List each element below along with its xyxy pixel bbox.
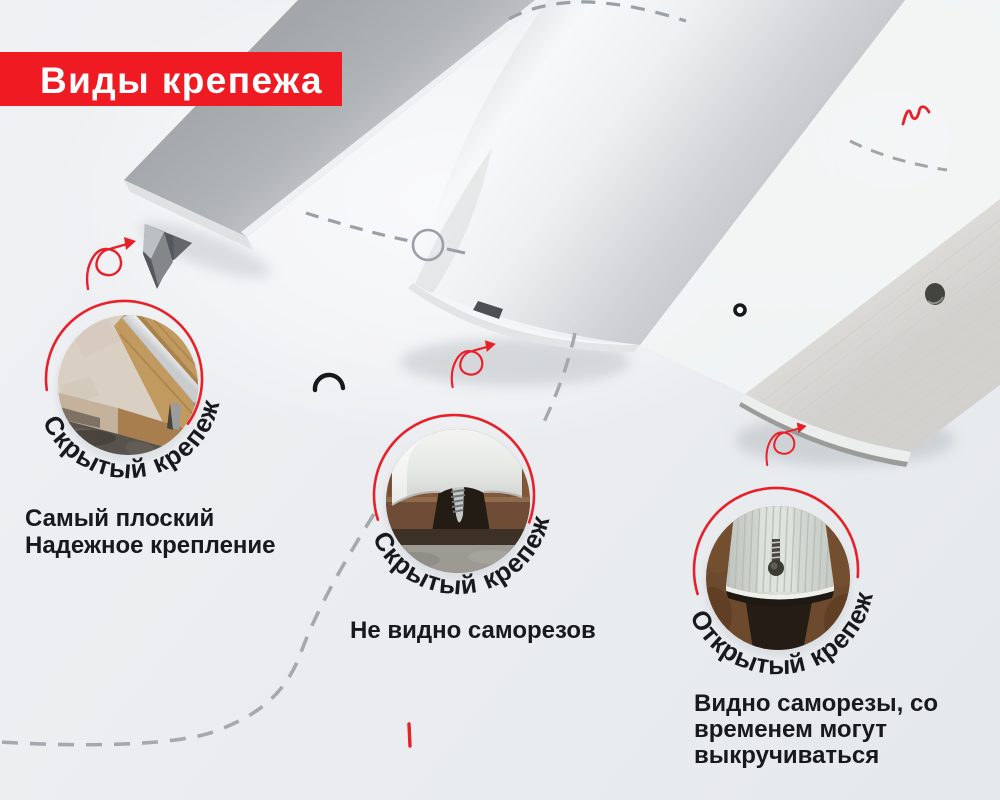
svg-text:Видно саморезы, со: Видно саморезы, со <box>694 690 938 717</box>
svg-text:Самый плоский: Самый плоский <box>25 505 214 532</box>
svg-text:Надежное крепление: Надежное крепление <box>25 532 276 559</box>
svg-text:Не видно саморезов: Не видно саморезов <box>350 617 596 644</box>
svg-text:Виды крепежа: Виды крепежа <box>40 60 323 101</box>
svg-text:выкручиваться: выкручиваться <box>694 742 879 769</box>
svg-text:временем могут: временем могут <box>694 716 887 743</box>
